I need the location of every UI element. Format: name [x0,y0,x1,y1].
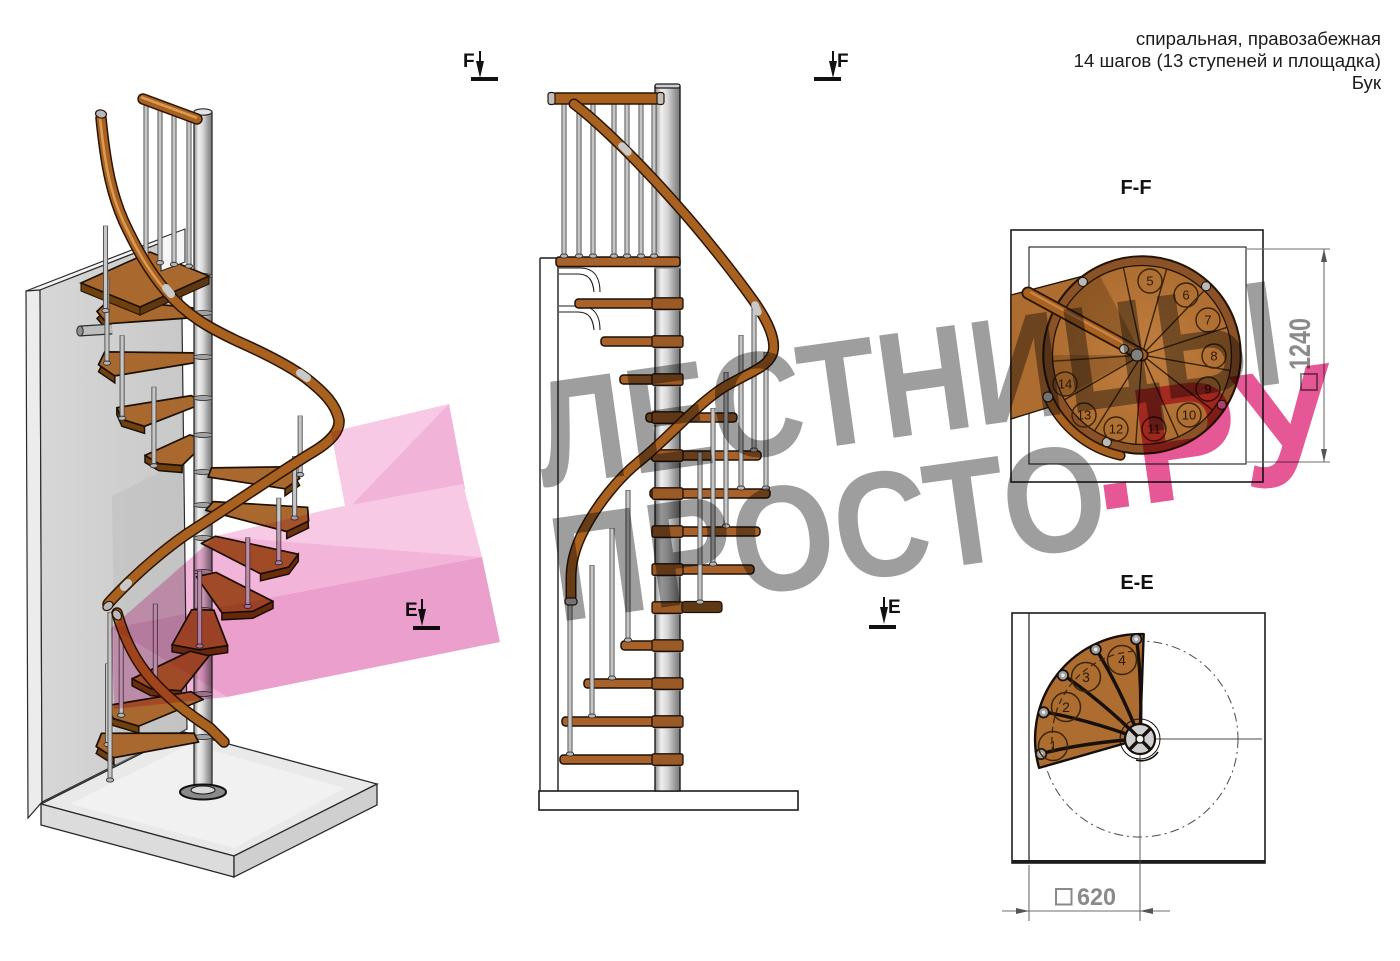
svg-text:1: 1 [1049,738,1057,754]
svg-text:F: F [837,51,849,72]
svg-text:Бук: Бук [1352,72,1382,93]
svg-text:2: 2 [1062,699,1070,715]
svg-text:E-E: E-E [1120,572,1153,594]
svg-text:F-F: F-F [1120,177,1151,199]
svg-text:3: 3 [1082,669,1090,685]
svg-text:14 шагов (13 ступеней и площад: 14 шагов (13 ступеней и площадка) [1074,50,1381,71]
svg-text:4: 4 [1118,652,1126,668]
svg-text:620: 620 [1077,884,1116,911]
svg-text:.РУ: .РУ [1075,328,1350,546]
svg-text:спиральная, правозабежная: спиральная, правозабежная [1136,28,1381,49]
svg-text:F: F [463,51,475,72]
